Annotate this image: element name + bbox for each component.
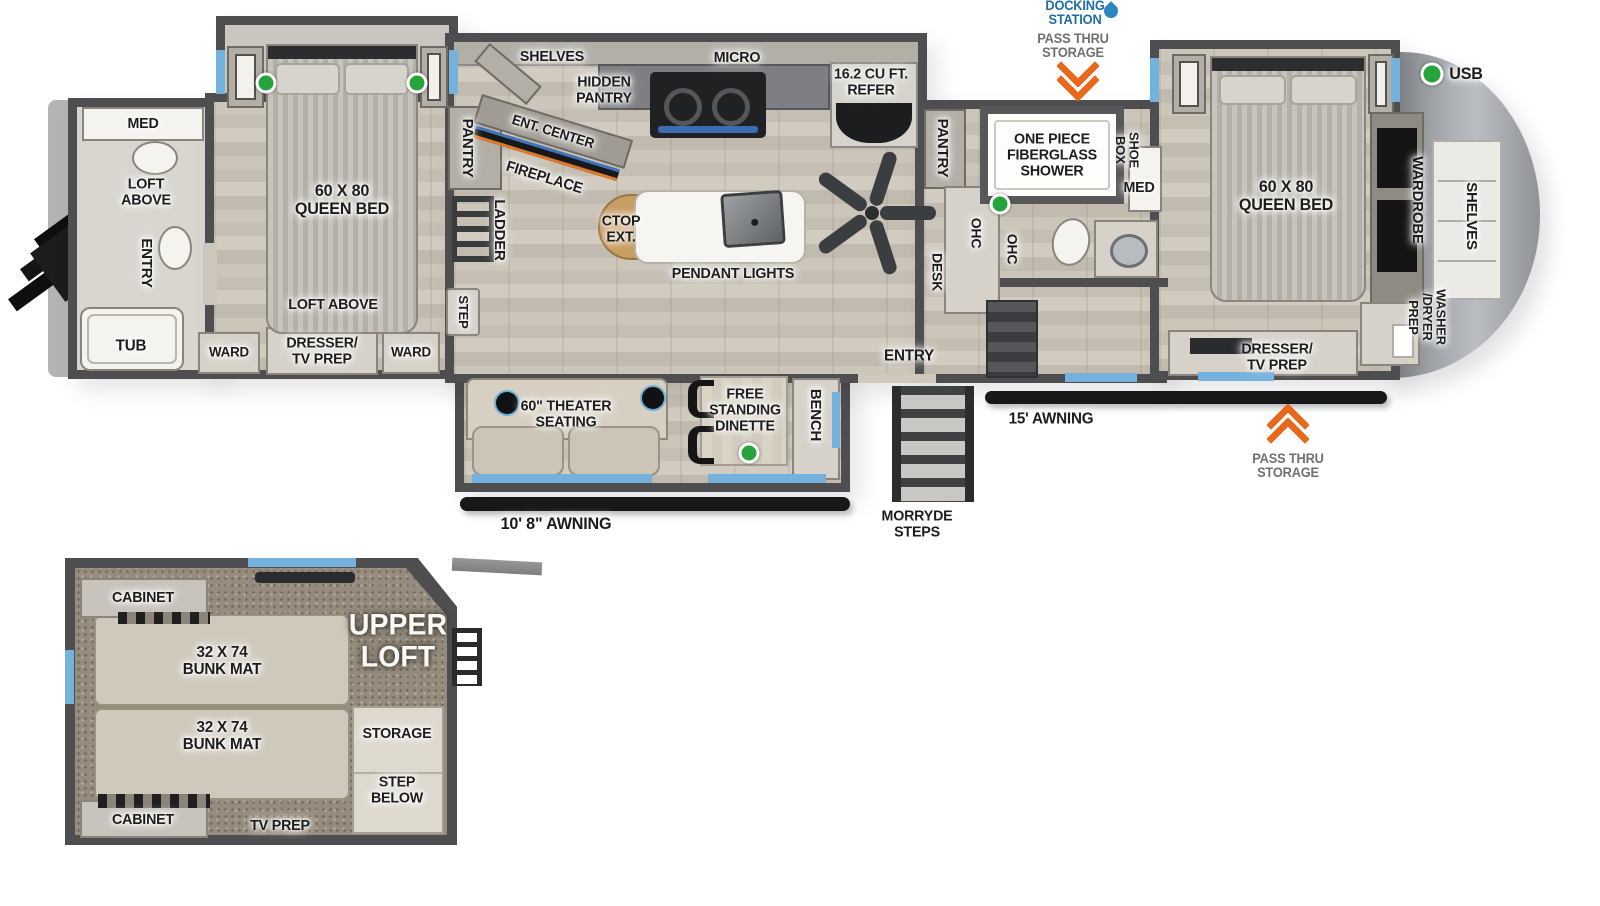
slide-awning-bar — [460, 497, 850, 511]
dinette-label: FREE STANDING DINETTE — [709, 386, 781, 433]
loft-bunk-top-label: 32 X 74 BUNK MAT — [183, 645, 261, 679]
rear-ward-right-label: WARD — [391, 345, 431, 360]
awning-main-label: 15' AWNING — [1009, 412, 1094, 429]
loft-tv-bar — [255, 572, 355, 583]
shower-label: ONE PIECE FIBERGLASS SHOWER — [1007, 131, 1097, 178]
dinette-usb-dot — [739, 443, 760, 464]
loft-tv-prep-label: TV PREP — [250, 818, 310, 834]
bench-label: BENCH — [807, 389, 823, 441]
refer-label: 16.2 CU FT. REFER — [834, 66, 908, 98]
rear-slide-window-left — [216, 50, 225, 94]
rear-dresser-label: DRESSER/ TV PREP — [286, 335, 357, 367]
step-label: STEP — [456, 295, 470, 328]
main-entry-door-gap — [858, 374, 936, 383]
usb-legend-dot — [1421, 63, 1444, 86]
loft-window-top — [248, 558, 356, 567]
cupholder-right — [640, 385, 666, 411]
front-shelves-label: SHELVES — [1463, 182, 1479, 250]
med-mid-label: MED — [1123, 180, 1154, 196]
hidden-pantry-label: HIDDEN PANTRY — [576, 74, 632, 106]
wardrobe-label: WARDROBE — [1409, 156, 1425, 244]
docking-station-label: DOCKING STATION — [1045, 0, 1104, 27]
front-nightstand-left — [1172, 54, 1206, 114]
slide-window-bottom-2 — [708, 474, 826, 483]
loft-roofline — [452, 558, 543, 576]
kitchen-shelves-label: SHELVES — [520, 49, 584, 65]
loft-window-left — [65, 650, 74, 704]
morryde-steps — [892, 386, 974, 502]
cupholder-left — [494, 390, 520, 416]
loft-ladder — [452, 196, 494, 262]
slide-window-bottom-1 — [472, 474, 652, 483]
mid-bath-vanity — [1094, 220, 1158, 278]
entry-main-label: ENTRY — [884, 349, 934, 366]
rear-bath-toilet — [158, 226, 192, 270]
usb-label: USB — [1449, 65, 1483, 83]
ctop-ext-label: CTOP EXT. — [602, 213, 641, 245]
awning-slide-label: 10' 8" AWNING — [501, 515, 612, 533]
cooktop-stove — [650, 72, 766, 138]
upper-loft-label: UPPER LOFT — [349, 610, 447, 673]
rear-loft-above2-label: LOFT ABOVE — [288, 297, 377, 313]
ohc-desk-label: OHC — [969, 218, 984, 249]
loft-vent-top — [118, 612, 210, 624]
loft-access-ladder — [452, 628, 482, 686]
shower-usb-dot — [990, 194, 1011, 215]
pantry-rear-label: PANTRY — [459, 119, 475, 178]
front-slide-window-right — [1391, 58, 1400, 102]
floorplan-canvas: MED LOFT ABOVE ENTRY TUB 60 X 80 QUEEN B… — [0, 0, 1600, 906]
ohc-bath-label: OHC — [1005, 234, 1020, 265]
pendant-lights-label: PENDANT LIGHTS — [672, 266, 794, 282]
rear-med-label: MED — [127, 116, 158, 132]
rear-entry-label: ENTRY — [138, 238, 154, 287]
front-wall-window-2 — [1198, 372, 1274, 381]
washer-dryer-label: WASHER /DRYER PREP — [1407, 289, 1448, 345]
island-sink — [720, 190, 786, 248]
loft-step-below-label: STEP BELOW — [371, 774, 423, 806]
morryde-steps-label: MORRYDE STEPS — [882, 508, 953, 540]
loft-storage-label: STORAGE — [363, 726, 432, 742]
loft-cabinet-bottom-label: CABINET — [112, 812, 174, 828]
loft-vent-bottom — [98, 794, 210, 808]
front-bed-label: 60 X 80 QUEEN BED — [1239, 178, 1333, 214]
desk-label: DESK — [930, 253, 945, 291]
main-awning-bar — [985, 391, 1387, 404]
front-slide-window-left — [1150, 58, 1159, 102]
pantry-mid-label: PANTRY — [934, 119, 950, 178]
loft-bunk-bottom-label: 32 X 74 BUNK MAT — [183, 720, 261, 754]
theater-seating-label: 60" THEATER SEATING — [521, 398, 612, 430]
rear-bed-label: 60 X 80 QUEEN BED — [295, 182, 389, 218]
rear-loft-above-label: LOFT ABOVE — [121, 176, 171, 208]
shoe-box-label: SHOE BOX — [1113, 132, 1140, 168]
bench-window — [832, 392, 840, 448]
front-wall-window-1 — [1065, 373, 1137, 382]
rear-ward-left-label: WARD — [209, 345, 249, 360]
tub-label: TUB — [116, 339, 147, 356]
front-dresser-label: DRESSER/ TV PREP — [1241, 341, 1312, 373]
loft-cabinet-top-label: CABINET — [112, 590, 174, 606]
ladder-label: LADDER — [491, 199, 507, 260]
bath-lower-wall — [978, 278, 1168, 287]
micro-label: MICRO — [714, 50, 761, 66]
interior-stairs — [986, 300, 1038, 378]
rear-bath-door-gap — [203, 243, 217, 305]
rear-bath-sink — [132, 141, 178, 175]
rear-bed-usb-dot-left — [256, 73, 277, 94]
rear-slide-window-right — [449, 50, 458, 94]
rear-bed-usb-dot-right — [407, 73, 428, 94]
